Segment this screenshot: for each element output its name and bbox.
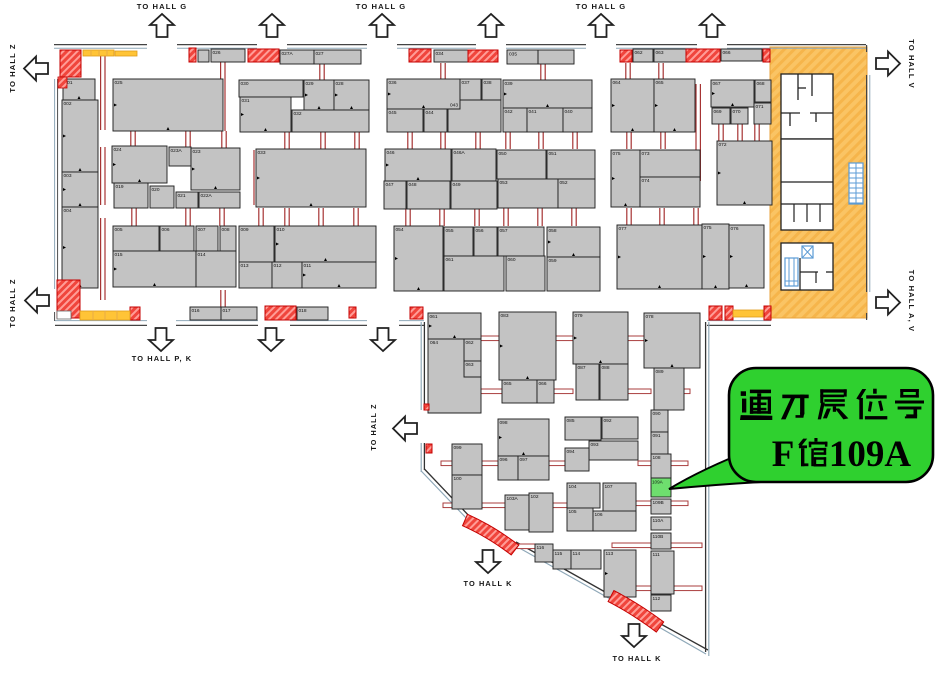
svg-text:058: 058 [549,228,557,234]
svg-text:022A: 022A [201,193,213,199]
svg-text:050: 050 [499,151,507,157]
svg-text:002: 002 [64,101,72,107]
svg-text:023A: 023A [171,148,183,154]
svg-text:025: 025 [115,80,123,86]
svg-text:064: 064 [613,80,621,86]
svg-text:017: 017 [223,308,231,314]
svg-text:036: 036 [389,80,397,86]
svg-text:049: 049 [453,182,461,188]
svg-text:113: 113 [606,551,614,557]
svg-text:TO HALL G: TO HALL G [576,2,627,11]
svg-text:072: 072 [719,142,727,148]
svg-text:038: 038 [484,80,492,86]
svg-text:075: 075 [613,151,621,157]
svg-text:013: 013 [241,263,249,269]
svg-text:003: 003 [64,173,72,179]
svg-text:110B: 110B [653,534,664,540]
svg-text:073: 073 [642,151,650,157]
svg-text:092: 092 [604,418,612,424]
svg-text:TO HALL P, K: TO HALL P, K [132,354,192,363]
svg-text:027: 027 [316,51,324,57]
svg-text:078: 078 [646,314,654,320]
svg-text:059: 059 [549,258,557,264]
svg-text:057: 057 [500,228,508,234]
svg-text:115: 115 [555,551,563,557]
svg-text:046: 046 [387,150,395,156]
svg-text:042: 042 [505,109,513,115]
svg-text:107: 107 [605,484,613,490]
svg-text:055: 055 [446,228,454,234]
svg-text:096: 096 [500,457,508,463]
svg-text:026: 026 [213,50,221,56]
svg-text:062: 062 [635,50,643,56]
svg-text:019: 019 [116,184,124,190]
svg-text:079: 079 [575,313,583,319]
svg-text:035: 035 [509,52,517,58]
svg-text:087: 087 [578,365,586,371]
svg-text:104: 104 [569,484,577,490]
svg-text:018: 018 [299,308,307,314]
svg-text:069: 069 [714,109,722,115]
svg-text:016: 016 [192,308,200,314]
svg-text:067: 067 [713,81,721,87]
svg-text:106: 106 [595,512,603,518]
svg-text:054: 054 [396,227,404,233]
svg-text:014: 014 [198,252,206,258]
svg-text:110A: 110A [653,518,665,524]
svg-text:040: 040 [565,109,573,115]
svg-text:071: 071 [756,104,764,110]
svg-text:091: 091 [653,433,661,439]
svg-text:043: 043 [450,103,458,109]
svg-text:008: 008 [222,227,230,233]
svg-text:075: 075 [704,225,712,231]
svg-text:TO HALL K: TO HALL K [612,654,661,663]
svg-text:030: 030 [241,81,249,87]
svg-text:045: 045 [389,110,397,116]
svg-text:TO HALL Z: TO HALL Z [369,403,378,450]
svg-text:065: 065 [504,381,512,387]
svg-text:064: 064 [430,340,438,346]
svg-text:024: 024 [114,147,122,153]
svg-text:063: 063 [656,50,664,56]
svg-text:114: 114 [573,551,581,557]
svg-text:007: 007 [198,227,206,233]
svg-text:109B: 109B [653,500,664,506]
svg-text:004: 004 [64,208,72,214]
svg-text:098: 098 [500,420,508,426]
svg-text:089: 089 [656,369,664,375]
svg-text:090: 090 [653,411,661,417]
svg-text:033: 033 [258,150,266,156]
svg-text:105: 105 [569,509,577,515]
svg-text:039: 039 [505,81,513,87]
svg-text:TO HALL V: TO HALL V [907,39,916,89]
svg-text:046A: 046A [454,150,466,156]
svg-text:116: 116 [537,545,545,551]
svg-text:074: 074 [642,178,650,184]
svg-text:TO HALL Z: TO HALL Z [8,43,17,92]
svg-text:063: 063 [466,362,474,368]
svg-text:053: 053 [500,180,508,186]
svg-text:TO HALL G: TO HALL G [137,2,188,11]
svg-text:051: 051 [549,151,557,157]
svg-text:015: 015 [115,252,123,258]
svg-text:060: 060 [508,257,516,263]
svg-text:088: 088 [602,365,610,371]
svg-text:023: 023 [193,149,201,155]
svg-text:109A: 109A [652,480,664,485]
svg-text:006: 006 [162,227,170,233]
svg-text:108: 108 [653,455,661,461]
svg-text:093: 093 [591,442,599,448]
svg-text:103A: 103A [507,496,519,502]
svg-text:061: 061 [446,257,454,263]
svg-text:TO HALL K: TO HALL K [463,579,512,588]
svg-text:068: 068 [757,81,765,87]
svg-text:037: 037 [462,80,470,86]
svg-text:011: 011 [304,263,312,269]
svg-text:TO HALL G: TO HALL G [356,2,407,11]
svg-text:052: 052 [560,180,568,186]
svg-text:066: 066 [723,50,731,56]
svg-text:032: 032 [294,111,302,117]
svg-text:034: 034 [436,51,444,57]
svg-text:097: 097 [520,457,528,463]
svg-text:083: 083 [501,313,509,319]
svg-text:048: 048 [409,182,417,188]
svg-text:TO HALL Z: TO HALL Z [8,278,17,327]
svg-text:031: 031 [242,98,250,104]
svg-text:076: 076 [731,226,739,232]
svg-text:112: 112 [653,596,661,602]
svg-text:070: 070 [733,109,741,115]
svg-text:010: 010 [277,227,285,233]
svg-text:020: 020 [152,187,160,193]
svg-text:021: 021 [178,193,186,199]
svg-text:077: 077 [619,226,627,232]
svg-text:099: 099 [454,445,462,451]
svg-text:102: 102 [531,494,539,500]
svg-text:100: 100 [454,476,462,482]
svg-text:056: 056 [476,228,484,234]
svg-text:027A: 027A [282,51,294,57]
svg-text:047: 047 [386,182,394,188]
svg-text:061: 061 [430,314,438,320]
svg-text:066: 066 [539,381,547,387]
svg-text:005: 005 [115,227,123,233]
svg-text:062: 062 [466,340,474,346]
svg-text:109A: 109A [829,434,912,475]
svg-text:085: 085 [567,418,575,424]
svg-text:009: 009 [241,227,249,233]
svg-text:041: 041 [529,109,537,115]
svg-text:TO HALL A, V: TO HALL A, V [907,270,916,332]
svg-text:044: 044 [426,110,434,116]
svg-text:111: 111 [653,552,661,558]
svg-text:012: 012 [274,263,282,269]
svg-text:028: 028 [336,81,344,87]
svg-text:029: 029 [306,81,314,87]
svg-text:094: 094 [567,449,575,455]
svg-text:F: F [772,434,795,475]
svg-text:065: 065 [656,80,664,86]
